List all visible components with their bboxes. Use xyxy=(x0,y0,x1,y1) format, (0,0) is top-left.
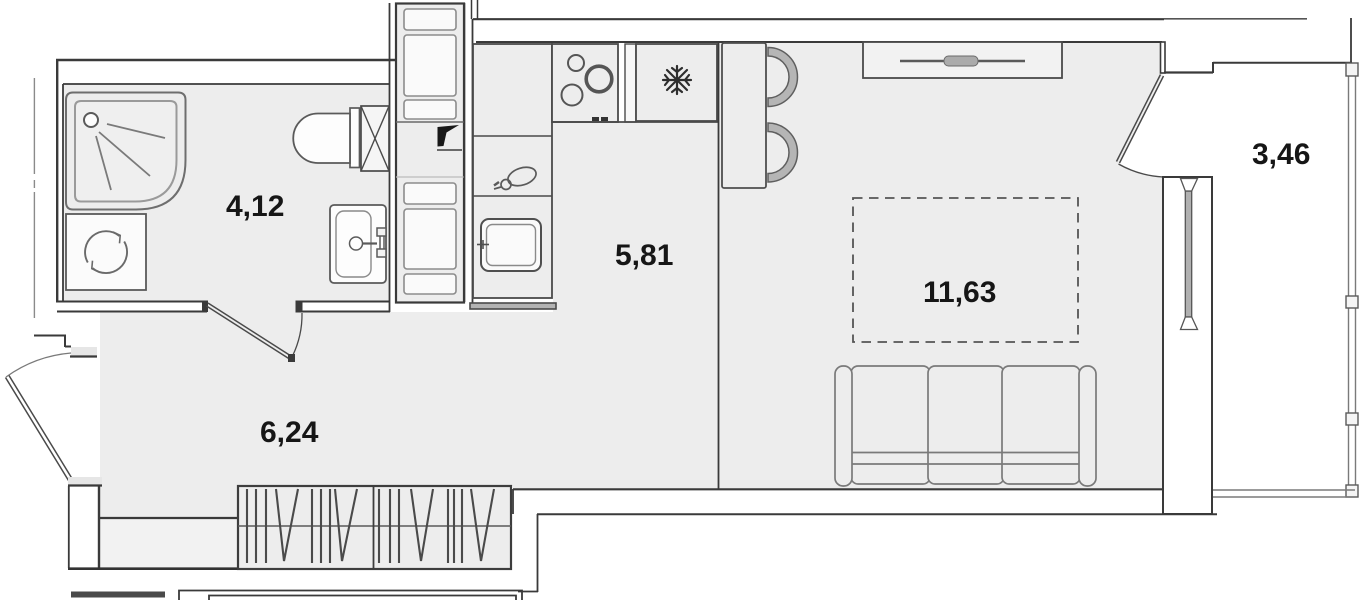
svg-text:3,46: 3,46 xyxy=(1252,138,1310,171)
svg-text:4,12: 4,12 xyxy=(226,190,284,223)
svg-text:5,81: 5,81 xyxy=(615,239,673,272)
svg-text:6,24: 6,24 xyxy=(260,416,319,449)
svg-text:11,63: 11,63 xyxy=(923,276,996,309)
